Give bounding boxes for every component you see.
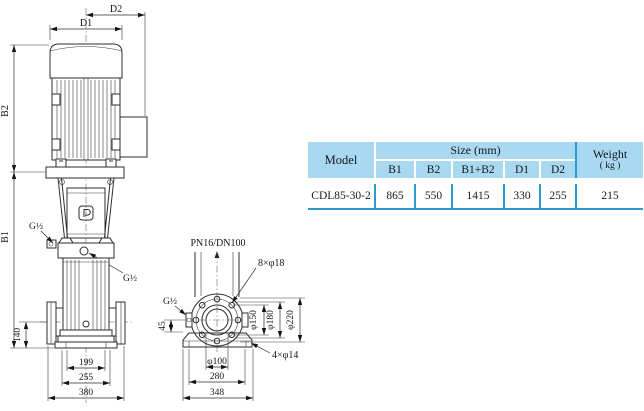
spec-table-header: Model Size (mm) Weight ( kg ) B1 B2 B1+B… [308,142,643,178]
motor-foot-bolt [106,159,116,167]
lantern-leg [107,178,114,243]
g-half-top-label: G½ [29,221,43,232]
discharge-flange [116,302,125,344]
dim-d2-label: D2 [110,4,122,15]
header-col-d1: D1 [505,161,539,178]
spec-table-row: CDL85-30-2 865 550 1415 330 255 215 [308,184,643,210]
dim-140-label: 140 [13,328,23,343]
motor-fan-cover [50,44,122,78]
header-col-d2: D2 [541,161,575,178]
header-col-b1b2: B1+B2 [453,161,503,178]
dim-348-label: 348 [210,388,225,398]
dim-255-label: 255 [79,373,94,383]
motor-foot-bolt [56,159,66,167]
brand-logo-glyph [84,210,90,218]
g-half-label: G½ [163,296,177,307]
header-size-group: Size (mm) [376,142,575,159]
dim-b2-label: B2 [0,105,11,117]
cell-b1: 865 [376,184,414,208]
base-collar [60,330,112,336]
base-flange [58,336,114,342]
base-plate [55,342,117,348]
dim-199-label: 199 [79,358,94,368]
flange-spec-label: PN16/DN100 [190,238,245,249]
g-half-mid-label: G½ [123,273,137,284]
head-bolt [59,238,73,243]
motor-body [52,78,120,160]
leader-line [175,306,186,315]
pump-dimension-sheet: D2 D1 B2 B1 [0,0,644,411]
cell-weight: 215 [577,184,643,208]
pump-side-view: D2 D1 B2 B1 [0,4,147,403]
motor-stool-plate [46,167,124,178]
motor-lug [52,94,60,105]
bolt-holes-label: 8×φ18 [258,258,284,269]
motor-lug [112,94,120,105]
dia-220-label: φ220 [286,310,296,330]
header-col-b2: B2 [416,161,451,178]
side-port-boss [242,313,248,327]
dim-380-label: 380 [79,388,94,398]
stage-barrel [63,258,109,336]
pump-head [58,243,114,258]
dia-100-label: φ100 [207,357,227,367]
dim-280-label: 280 [210,372,225,382]
dim-45-label: 45 [158,321,168,331]
cell-b2: 550 [416,184,451,208]
dia-150-label: φ150 [249,310,259,330]
header-weight-line1: Weight [593,148,627,161]
header-weight-line2: ( kg ) [600,161,621,171]
base-holes-label: 4×φ14 [272,350,298,361]
header-model: Model [308,142,374,178]
pump-flange-view: PN16/DN100 [158,238,305,401]
header-col-b1: B1 [376,161,414,178]
dia-180-label: φ180 [266,310,276,330]
suction-flange [47,302,56,344]
dim-b1-label: B1 [0,231,11,243]
motor-lug [112,139,120,150]
cell-model: CDL85-30-2 [308,184,374,208]
cell-d2: 255 [541,184,575,208]
technical-drawing: D2 D1 B2 B1 [0,0,330,411]
cell-d1: 330 [505,184,539,208]
leader-line [251,343,270,353]
dim-d1-label: D1 [80,18,92,29]
head-bolt [99,238,113,243]
header-weight: Weight ( kg ) [577,142,643,178]
spec-table: Model Size (mm) Weight ( kg ) B1 B2 B1+B… [308,142,643,210]
lantern-leg [58,178,65,243]
cell-b1b2: 1415 [453,184,503,208]
terminal-box [120,117,147,157]
motor-lug [52,139,60,150]
